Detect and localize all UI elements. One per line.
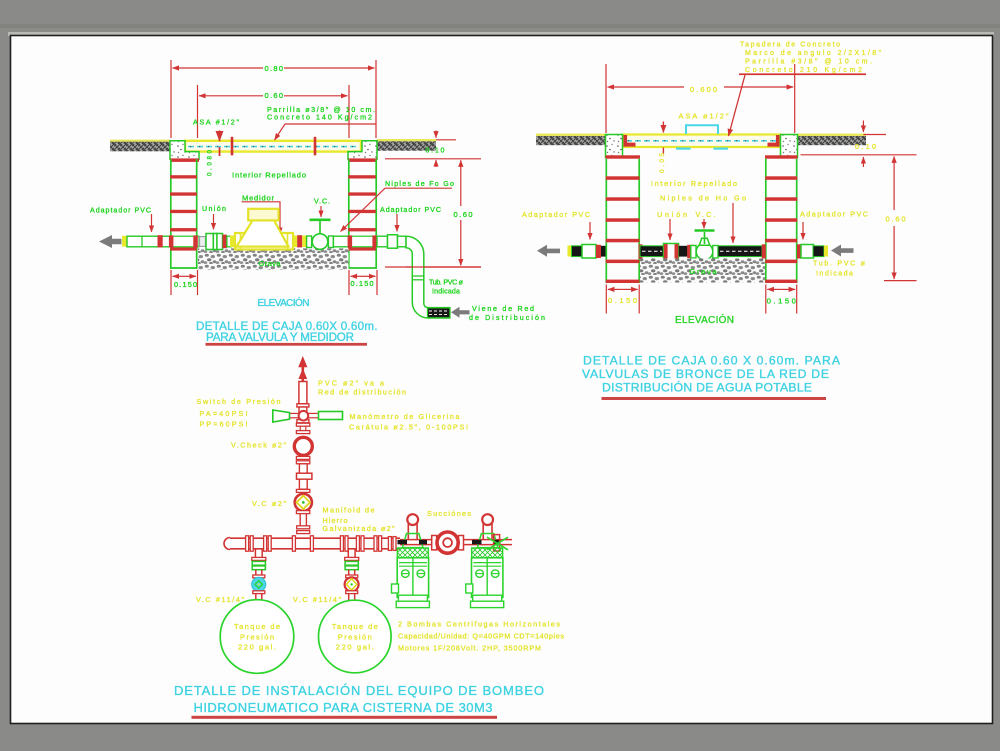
svg-text:Unión: Unión [202,205,226,213]
svg-text:0.10: 0.10 [855,143,876,151]
svg-text:Adaptador PVC: Adaptador PVC [380,206,441,214]
svg-text:Grava: Grava [690,267,718,276]
svg-text:Manómetro de Glicerina: Manómetro de Glicerina [350,412,460,421]
svg-text:Concreto 140 Kg/cm2: Concreto 140 Kg/cm2 [267,113,372,121]
svg-text:Red de distribución: Red de distribución [318,388,406,397]
svg-text:Tub. PVC ø: Tub. PVC ø [813,260,866,268]
svg-text:0.60: 0.60 [454,210,473,219]
svg-text:VALVULAS DE BRONCE DE LA RED D: VALVULAS DE BRONCE DE LA RED DE [582,367,829,381]
svg-text:PARA VALVULA Y MEDIDOR: PARA VALVULA Y MEDIDOR [206,331,354,344]
svg-text:0.600: 0.600 [690,85,717,94]
svg-text:Tanque de: Tanque de [332,622,378,631]
svg-text:Interior Repellado: Interior Repellado [232,171,306,180]
svg-text:Medidor: Medidor [242,193,275,202]
svg-text:Grava: Grava [259,259,282,268]
svg-text:Carátula ø2.5", 0-100PSI: Carátula ø2.5", 0-100PSI [349,422,468,431]
svg-text:Tanque de: Tanque de [234,622,280,631]
svg-text:ASA #1/2": ASA #1/2" [193,118,239,126]
svg-text:DISTRIBUCIÓN DE AGUA POTABLE: DISTRIBUCIÓN DE AGUA POTABLE [602,380,812,395]
svg-text:Viene de Red: Viene de Red [472,305,534,313]
svg-text:ELEVACIÓN: ELEVACIÓN [258,296,310,309]
svg-text:Unión: Unión [657,210,687,219]
svg-text:Capacidad/Unidad: Q=40GPM CDT=: Capacidad/Unidad: Q=40GPM CDT=140pies [398,632,564,641]
svg-text:DETALLE DE INSTALACIÓN DEL EQU: DETALLE DE INSTALACIÓN DEL EQUIPO DE BOM… [174,683,544,698]
svg-text:Adaptador PVC: Adaptador PVC [522,210,590,219]
svg-text:DETALLE DE CAJA 0.60 X 0.60m.: DETALLE DE CAJA 0.60 X 0.60m. PARA [583,354,841,368]
svg-text:PP=60PSI: PP=60PSI [200,420,248,429]
svg-text:Motores 1F/208Volt. 2HP, 3500R: Motores 1F/208Volt. 2HP, 3500RPM [398,644,541,653]
svg-text:0.60: 0.60 [265,91,284,100]
svg-text:0.80: 0.80 [265,64,284,73]
svg-text:Indicada: Indicada [816,270,853,278]
svg-text:Marco de angulo 2/2X1/8": Marco de angulo 2/2X1/8" [745,50,882,57]
svg-text:0.05: 0.05 [659,152,666,173]
svg-text:Concreto 210 Kg/cm2: Concreto 210 Kg/cm2 [745,67,862,74]
svg-text:0.10: 0.10 [426,146,445,154]
svg-text:220 gal.: 220 gal. [336,643,374,652]
svg-text:V.Check ø2": V.Check ø2" [231,441,286,450]
svg-text:HIDRONEUMATICO PARA CISTERNA D: HIDRONEUMATICO PARA CISTERNA DE 30M3 [194,700,493,715]
svg-text:0.60: 0.60 [886,215,906,224]
svg-text:V.C ø2": V.C ø2" [252,499,286,508]
svg-text:0.150: 0.150 [174,280,197,289]
svg-text:Adaptador PVC: Adaptador PVC [90,206,151,214]
svg-text:2 Bombas Centrifugas Horizonta: 2 Bombas Centrifugas Horizontales [398,620,560,629]
svg-text:Parrilla #3/8" @ 10 cm.: Parrilla #3/8" @ 10 cm. [745,59,872,66]
svg-text:Tub. PVC ø: Tub. PVC ø [429,278,464,286]
svg-text:Interior Repellado: Interior Repellado [651,179,737,188]
svg-text:Manifold de: Manifold de [323,506,375,515]
svg-text:220 gal.: 220 gal. [238,643,276,652]
svg-text:0.150: 0.150 [351,279,374,288]
svg-text:Indicada: Indicada [432,287,460,295]
svg-text:V.C.: V.C. [314,197,330,205]
svg-text:ASA ø1/2": ASA ø1/2" [679,112,729,121]
svg-text:Succiónes: Succiónes [427,509,471,518]
svg-text:Adaptador PVC: Adaptador PVC [800,210,868,219]
svg-text:Galvanizada ø2": Galvanizada ø2" [323,524,395,533]
svg-text:Switch de Presión: Switch de Presión [197,397,281,406]
svg-text:ELEVACIÓN: ELEVACIÓN [675,313,734,326]
